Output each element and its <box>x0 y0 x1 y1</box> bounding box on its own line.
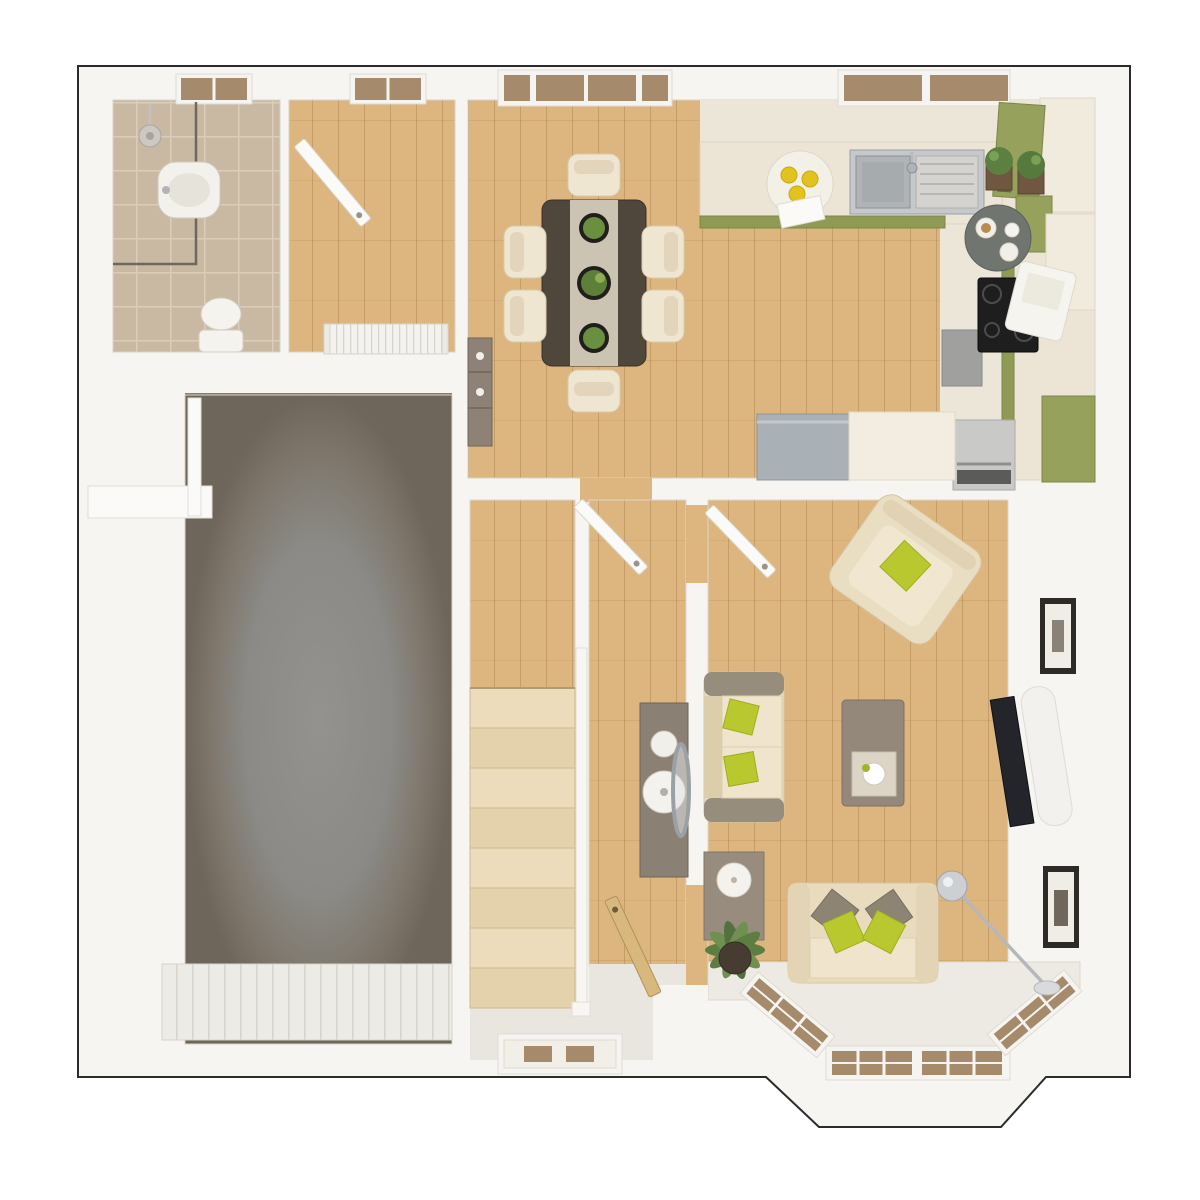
toilet-bowl <box>201 298 241 330</box>
bistro-table <box>965 205 1031 271</box>
stair-tread <box>470 688 575 728</box>
garage-floor <box>185 395 452 1044</box>
lamp-globe <box>937 871 967 901</box>
stair-tread <box>470 848 575 888</box>
extractor-unit <box>942 330 982 386</box>
floorplan-svg <box>0 0 1200 1200</box>
table-lamp-center <box>731 877 737 883</box>
wall-mirror <box>673 744 689 836</box>
console-bowl <box>651 731 677 757</box>
stair-tread <box>470 968 575 1008</box>
cabinet-handle <box>997 191 1011 192</box>
basin-bowl <box>168 173 210 207</box>
cloakroom-skylight <box>350 74 426 104</box>
landing-floor <box>470 500 575 688</box>
window-glass <box>844 75 922 101</box>
croissant <box>981 223 991 233</box>
plant-accent <box>595 273 605 283</box>
wall-frame-bottom <box>1043 866 1079 948</box>
sideboard-item <box>476 388 484 396</box>
door-glass <box>642 75 668 101</box>
toilet-cistern <box>199 330 243 352</box>
console-lamp-center <box>660 788 668 796</box>
newel-post <box>572 1002 590 1016</box>
sofa-left <box>704 672 784 822</box>
door-glass <box>536 75 584 101</box>
oven <box>953 420 1015 490</box>
cloakroom-floor <box>289 100 455 352</box>
doorway-dining-hall-floor <box>580 478 652 502</box>
frame-art <box>1054 890 1068 926</box>
bay-window-center <box>826 1046 1010 1080</box>
chair-cushion <box>664 232 678 272</box>
herb-leaves <box>985 147 1013 175</box>
lamp-base <box>1034 981 1060 995</box>
bathroom-skylight <box>176 74 252 104</box>
garage-door <box>162 964 452 1040</box>
wall-frame-top <box>1040 598 1076 674</box>
door-glass <box>566 1046 594 1062</box>
lemon <box>781 167 797 183</box>
lemon <box>802 171 818 187</box>
chair-cushion <box>574 382 614 396</box>
stair-tread <box>470 928 575 968</box>
kitchen-peninsula <box>849 412 955 480</box>
staircase <box>470 648 590 1016</box>
radiator-cap <box>324 324 330 354</box>
radiator <box>324 324 448 354</box>
chair-cushion <box>664 296 678 336</box>
wall-stub-entry <box>653 985 708 1075</box>
chair-cushion <box>510 296 524 336</box>
sofa-arm <box>704 672 784 696</box>
door-glass <box>504 75 530 101</box>
plant <box>583 327 605 349</box>
stair-tread <box>470 728 575 768</box>
plant-pot <box>719 942 751 974</box>
lamp-highlight <box>943 877 953 887</box>
door-leaf <box>504 1040 616 1068</box>
bistro-top <box>965 205 1031 271</box>
sofa-arm <box>916 883 938 983</box>
freezer-unit <box>757 414 849 480</box>
french-doors <box>498 70 672 106</box>
radiator-cap <box>442 324 448 354</box>
chair-cushion <box>574 160 614 174</box>
doorway-hall-living-top-floor <box>686 505 708 583</box>
kitchen-window <box>838 70 1010 106</box>
floorplan-stage <box>0 0 1200 1200</box>
stair-tread <box>470 768 575 808</box>
stair-tread <box>470 888 575 928</box>
faucet <box>907 163 917 173</box>
door-glass <box>524 1046 552 1062</box>
dining-table <box>542 200 646 366</box>
kitchen-base-unit-green <box>1042 396 1095 482</box>
frame-art <box>1052 620 1064 652</box>
cushion-green <box>723 699 759 735</box>
plant <box>583 217 605 239</box>
oven-glass <box>957 470 1011 484</box>
cushion-green <box>724 752 759 787</box>
garnish <box>862 764 870 772</box>
herb-leaves <box>1017 151 1045 179</box>
door-glass <box>588 75 636 101</box>
front-door <box>498 1034 622 1074</box>
plant <box>581 270 607 296</box>
freezer-body <box>757 414 849 480</box>
coffee-table <box>842 700 904 806</box>
banister <box>576 648 587 1010</box>
cup <box>1005 223 1019 237</box>
basin <box>158 162 220 218</box>
stair-tread <box>470 808 575 848</box>
herb-highlight <box>1031 155 1041 165</box>
sideboard <box>468 338 492 446</box>
chair-cushion <box>510 232 524 272</box>
shower-rose-center <box>146 132 154 140</box>
herb-highlight <box>989 151 999 161</box>
sofa-arm <box>788 883 810 983</box>
breakfast-plate <box>1000 243 1018 261</box>
garage-side-door-leaf <box>188 398 201 516</box>
sofa-seat <box>810 938 916 978</box>
basin-tap <box>162 186 170 194</box>
sideboard-item <box>476 352 484 360</box>
sofa-bottom <box>788 883 938 983</box>
kitchen-sink <box>850 150 984 214</box>
sofa-arm <box>704 798 784 822</box>
radiator-body <box>330 324 442 354</box>
window-glass <box>930 75 1008 101</box>
sink-basin-inner <box>862 162 904 202</box>
kitchen-tall-unit <box>1040 98 1095 212</box>
sofa-back <box>704 696 722 798</box>
